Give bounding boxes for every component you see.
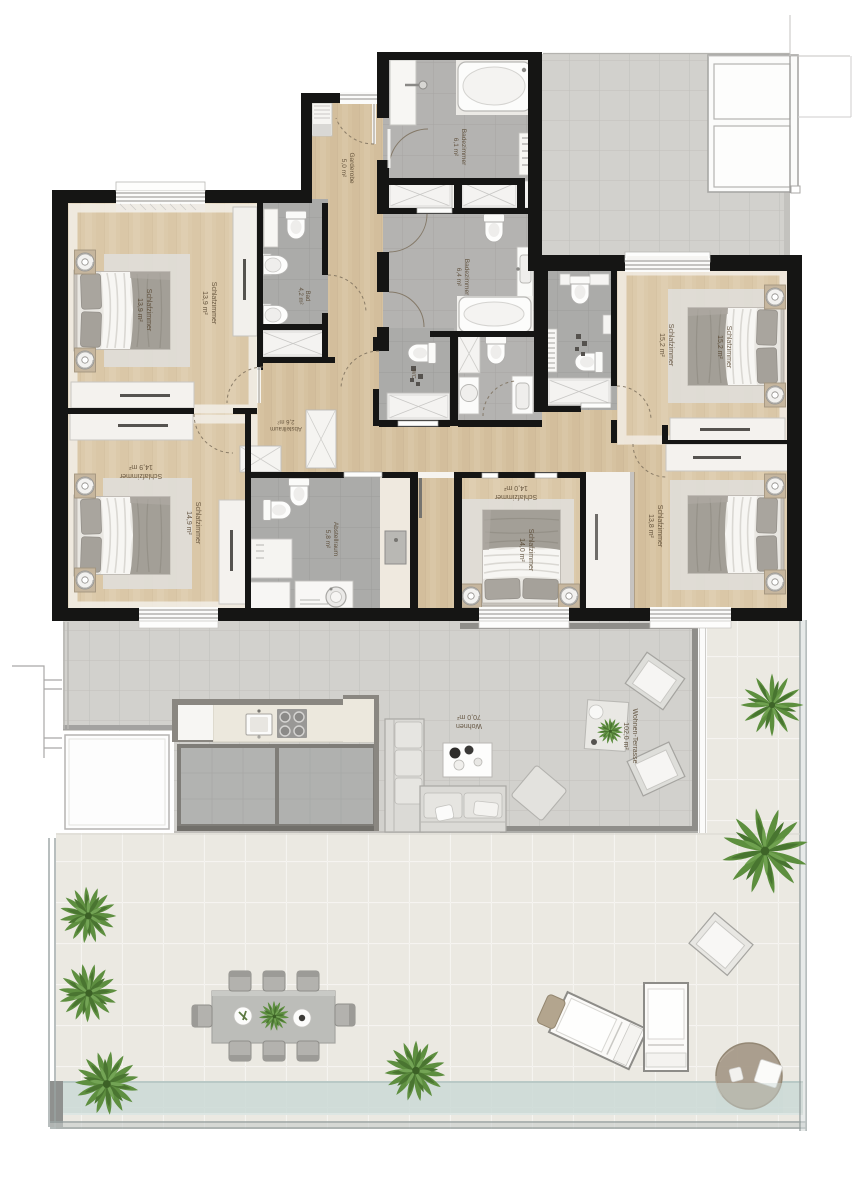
svg-text:WC: WC	[410, 369, 416, 378]
